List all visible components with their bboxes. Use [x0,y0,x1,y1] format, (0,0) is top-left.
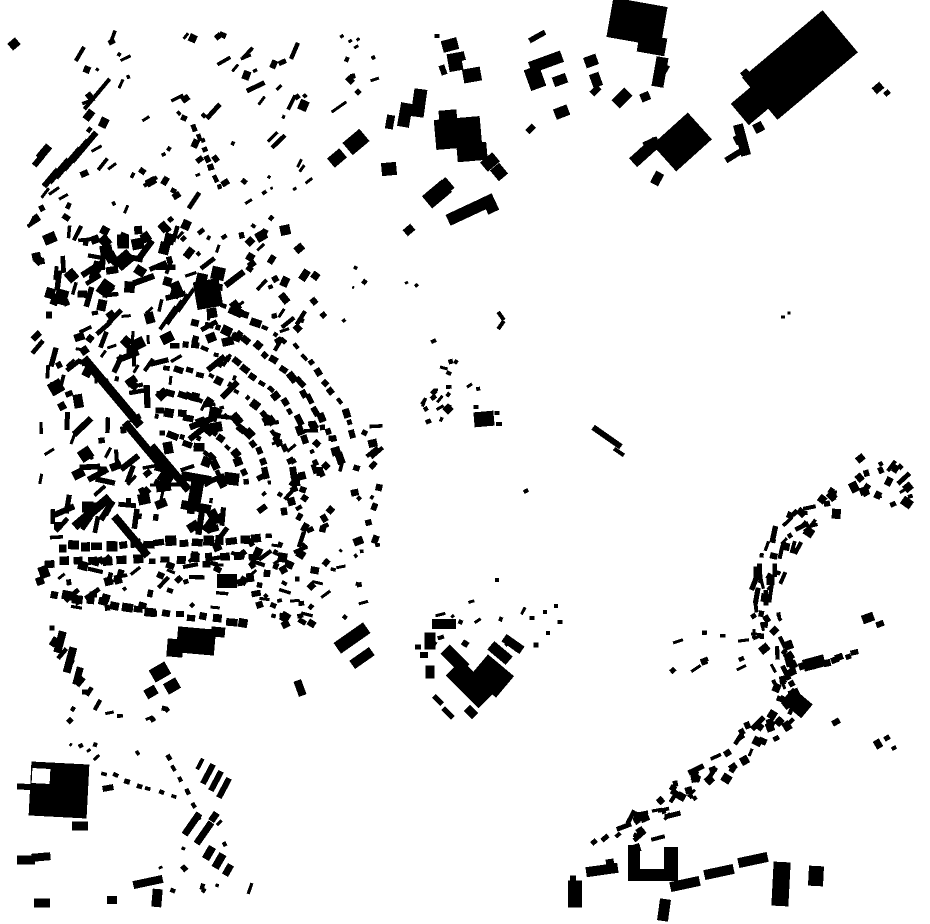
courtyard-patches-layer [32,768,51,784]
figure-ground-map-stage [0,0,930,924]
building-footprint-map [0,0,930,924]
buildings-layer [7,0,914,922]
